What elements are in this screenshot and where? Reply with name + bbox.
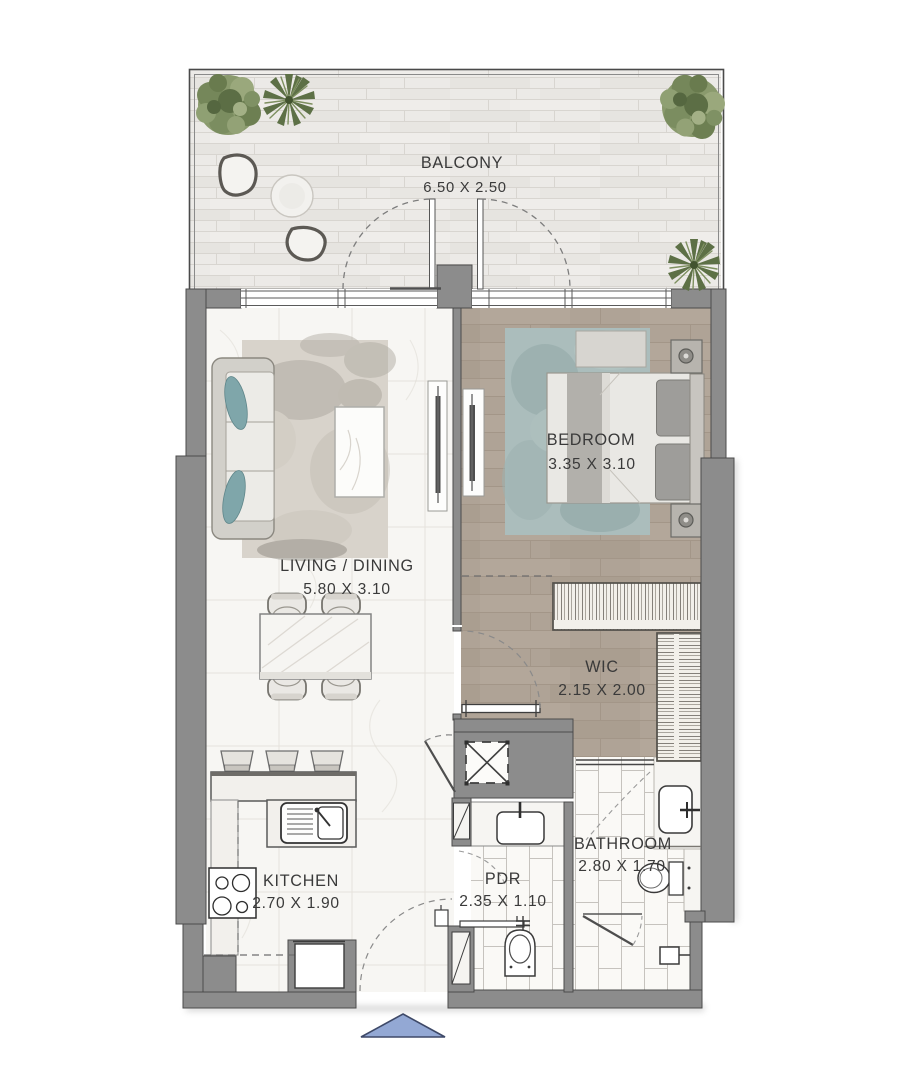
svg-text:WIC: WIC bbox=[585, 658, 619, 676]
svg-text:2.70 X 1.90: 2.70 X 1.90 bbox=[252, 895, 339, 912]
svg-text:2.80 X 1.70: 2.80 X 1.70 bbox=[578, 858, 665, 875]
svg-text:2.15 X 2.00: 2.15 X 2.00 bbox=[558, 682, 645, 699]
svg-text:BALCONY: BALCONY bbox=[421, 154, 503, 172]
svg-text:PDR: PDR bbox=[485, 870, 521, 888]
svg-text:LIVING / DINING: LIVING / DINING bbox=[280, 557, 414, 575]
svg-text:5.80 X 3.10: 5.80 X 3.10 bbox=[303, 581, 390, 598]
svg-text:BEDROOM: BEDROOM bbox=[547, 431, 636, 449]
svg-text:BATHROOM: BATHROOM bbox=[574, 835, 672, 853]
svg-text:2.35 X 1.10: 2.35 X 1.10 bbox=[459, 893, 546, 910]
svg-text:KITCHEN: KITCHEN bbox=[263, 872, 339, 890]
svg-text:3.35 X 3.10: 3.35 X 3.10 bbox=[548, 456, 635, 473]
svg-text:6.50 X 2.50: 6.50 X 2.50 bbox=[423, 180, 506, 196]
